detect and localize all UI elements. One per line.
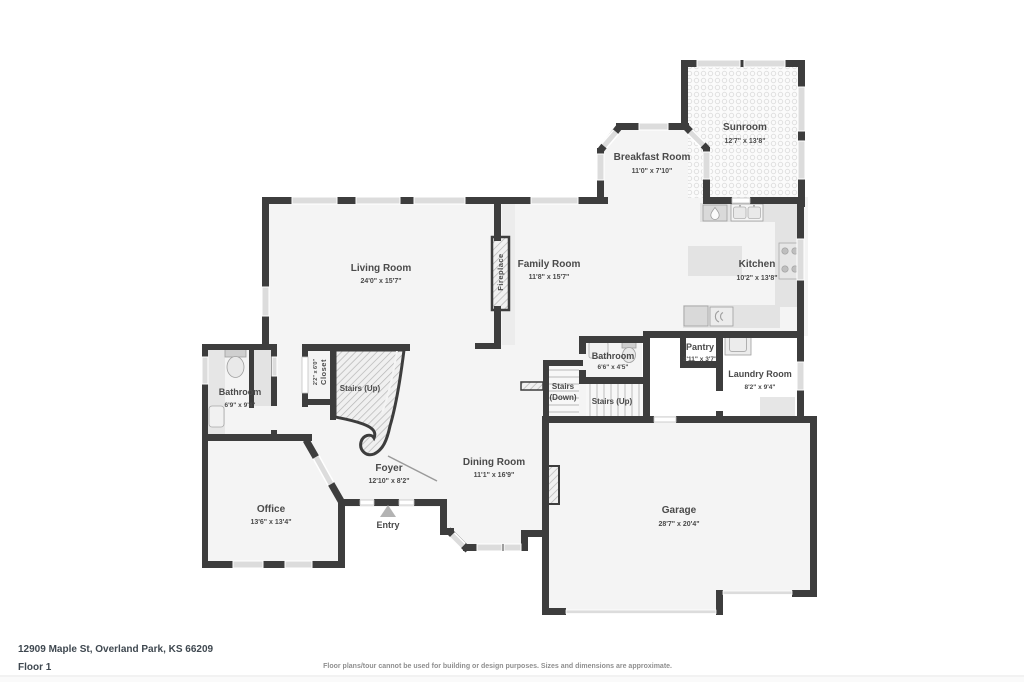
- svg-text:(Down): (Down): [549, 393, 576, 402]
- svg-text:Stairs (Up): Stairs (Up): [592, 397, 633, 406]
- svg-text:11'1" x 16'9": 11'1" x 16'9": [474, 472, 515, 479]
- room-label-closet: Closet 2'2" x 6'0": [313, 359, 328, 386]
- svg-text:11'0" x 7'10": 11'0" x 7'10": [632, 168, 673, 175]
- svg-text:Fireplace: Fireplace: [496, 253, 505, 290]
- bath-sink-icon: [209, 406, 224, 427]
- room-label-fireplace: Fireplace: [496, 253, 505, 290]
- svg-text:8'2" x 9'4": 8'2" x 9'4": [745, 384, 776, 391]
- svg-text:Garage: Garage: [662, 505, 697, 516]
- svg-text:Entry: Entry: [376, 520, 399, 530]
- room-label-laundry-room: Laundry Room 8'2" x 9'4": [728, 369, 792, 391]
- floor-plan-drawing: Living Room 24'0" x 15'7" Family Room 11…: [0, 0, 1024, 682]
- garage-door-left: [566, 610, 716, 614]
- svg-text:6'9" x 9'4": 6'9" x 9'4": [225, 402, 256, 409]
- svg-text:Stairs (Up): Stairs (Up): [340, 384, 381, 393]
- room-label-entry: Entry: [376, 520, 399, 530]
- stairs-down-treads: [549, 364, 579, 418]
- fridge-icon: [684, 306, 708, 326]
- kitchen-sink-icon: [731, 204, 763, 221]
- svg-text:Family Room: Family Room: [518, 259, 581, 270]
- svg-text:Closet: Closet: [319, 359, 328, 385]
- floor-label: Floor 1: [18, 662, 52, 673]
- svg-text:13'6" x 13'4": 13'6" x 13'4": [250, 519, 291, 526]
- room-label-stairs-spiral: Stairs (Up): [340, 384, 381, 393]
- svg-text:6'6" x 4'5": 6'6" x 4'5": [598, 364, 629, 371]
- hall-wall-hatch: [521, 382, 543, 390]
- svg-text:12'7" x 13'8": 12'7" x 13'8": [724, 138, 765, 145]
- svg-text:28'7" x 20'4": 28'7" x 20'4": [658, 521, 699, 528]
- svg-text:Bathroom: Bathroom: [219, 387, 262, 397]
- svg-text:Pantry: Pantry: [686, 342, 714, 352]
- svg-text:24'0" x 15'7": 24'0" x 15'7": [360, 278, 401, 285]
- floor-plan-page: Living Room 24'0" x 15'7" Family Room 11…: [0, 0, 1024, 682]
- footer-strip: [0, 677, 1024, 682]
- svg-text:3'11" x 3'7": 3'11" x 3'7": [683, 356, 717, 363]
- microwave-icon: [710, 307, 733, 326]
- svg-text:Bathroom: Bathroom: [592, 351, 635, 361]
- svg-text:Living Room: Living Room: [351, 263, 412, 274]
- laundry-counter: [760, 397, 795, 418]
- svg-text:2'2" x 6'0": 2'2" x 6'0": [313, 359, 319, 386]
- svg-text:Stairs: Stairs: [552, 382, 575, 391]
- room-label-pantry: Pantry 3'11" x 3'7": [683, 342, 717, 363]
- disclaimer-text: Floor plans/tour cannot be used for buil…: [323, 663, 672, 670]
- svg-text:Breakfast Room: Breakfast Room: [614, 152, 691, 163]
- svg-text:12'10" x 8'2": 12'10" x 8'2": [368, 478, 409, 485]
- garage-door-right: [723, 591, 792, 595]
- svg-text:Dining Room: Dining Room: [463, 457, 525, 468]
- svg-text:10'2" x 13'8": 10'2" x 13'8": [736, 275, 777, 282]
- dishwasher-icon: [703, 205, 727, 221]
- room-label-stairs-up: Stairs (Up): [592, 397, 633, 406]
- svg-text:Foyer: Foyer: [375, 463, 402, 474]
- svg-text:Sunroom: Sunroom: [723, 122, 767, 133]
- svg-text:Office: Office: [257, 504, 286, 515]
- svg-text:Kitchen: Kitchen: [739, 259, 776, 270]
- closet-bifold-door: [302, 357, 308, 393]
- address-text: 12909 Maple St, Overland Park, KS 66209: [18, 644, 214, 655]
- footer: 12909 Maple St, Overland Park, KS 66209 …: [0, 644, 1024, 682]
- svg-text:11'8" x 15'7": 11'8" x 15'7": [529, 274, 570, 281]
- svg-text:Laundry Room: Laundry Room: [728, 369, 792, 379]
